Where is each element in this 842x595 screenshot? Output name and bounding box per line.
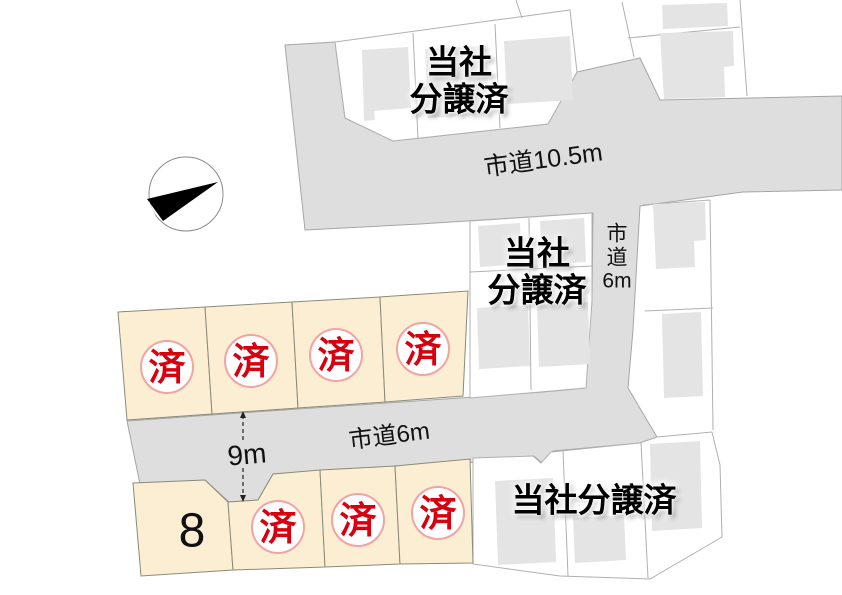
road-label-6m-vertical-char2: 道 — [602, 246, 631, 270]
road-label-6m-vertical-char3: 6m — [602, 270, 631, 294]
building — [662, 312, 703, 398]
subdivision-lot-map: 当社 分譲済 当社 分譲済 当社分譲済 市道10.5m 市 道 6m 市道6m … — [0, 0, 842, 595]
building — [573, 515, 626, 563]
sold-badge-lot5: 済 — [251, 500, 305, 554]
building — [537, 302, 590, 367]
road-label-6m-vertical-char1: 市 — [602, 223, 631, 247]
sold-area-label-top: 当社 分譲済 — [410, 44, 509, 119]
lot-line — [622, 2, 634, 57]
lot-number-8: 8 — [179, 504, 206, 559]
sold-badge-lot4: 済 — [396, 322, 450, 376]
building — [653, 202, 706, 269]
sold-area-label-bottom: 当社分譲済 — [512, 481, 677, 518]
lot-line — [740, 0, 747, 96]
lot-line — [645, 308, 713, 311]
sold-badge-lot3: 済 — [309, 328, 363, 382]
lot-line — [516, 0, 522, 18]
building — [662, 3, 728, 29]
road-label-6m-vertical: 市 道 6m — [602, 223, 631, 294]
building — [504, 36, 573, 104]
sold-area-label-middle: 当社 分譲済 — [488, 235, 587, 310]
north-arrow-icon — [147, 157, 223, 231]
sold-area-label-middle-line1: 当社 — [488, 235, 587, 272]
sold-badge-lot7: 済 — [411, 486, 465, 540]
sold-badge-lot6: 済 — [331, 493, 385, 547]
road-width-label-9m: 9m — [226, 437, 268, 472]
sold-area-label-top-line1: 当社 — [410, 44, 509, 81]
sold-badge-lot2: 済 — [224, 334, 278, 388]
sold-badge-lot1: 済 — [140, 340, 194, 394]
sold-area-label-top-line2: 分譲済 — [410, 81, 509, 118]
sold-area-label-middle-line2: 分譲済 — [488, 272, 587, 309]
building — [660, 31, 734, 99]
building — [477, 305, 530, 369]
lot-line — [710, 200, 713, 430]
